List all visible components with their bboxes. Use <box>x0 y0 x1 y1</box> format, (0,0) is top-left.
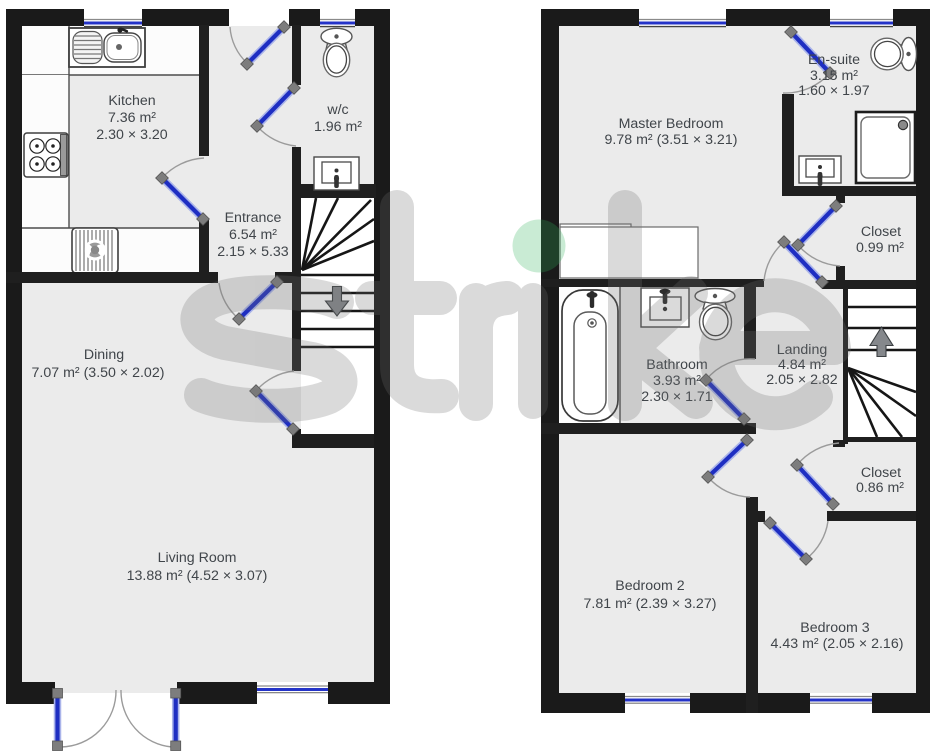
svg-text:7.07 m² (3.50 × 2.02): 7.07 m² (3.50 × 2.02) <box>32 365 165 381</box>
svg-text:w/c: w/c <box>326 102 348 118</box>
svg-text:Bedroom 2: Bedroom 2 <box>615 578 685 594</box>
svg-text:Closet: Closet <box>861 465 901 481</box>
svg-text:9.78 m² (3.51 × 3.21): 9.78 m² (3.51 × 3.21) <box>605 132 738 148</box>
svg-text:2.15 × 5.33: 2.15 × 5.33 <box>217 244 289 260</box>
svg-text:Closet: Closet <box>861 224 901 240</box>
svg-text:Kitchen: Kitchen <box>108 93 155 109</box>
svg-text:Entrance: Entrance <box>225 210 282 226</box>
svg-text:Dining: Dining <box>84 347 124 363</box>
svg-text:13.88 m² (4.52 × 3.07): 13.88 m² (4.52 × 3.07) <box>127 568 268 584</box>
svg-text:0.86 m²: 0.86 m² <box>856 480 904 496</box>
svg-text:7.81 m² (2.39 × 3.27): 7.81 m² (2.39 × 3.27) <box>584 596 717 612</box>
svg-text:0.99 m²: 0.99 m² <box>856 240 904 256</box>
svg-text:En-suite: En-suite <box>808 52 860 68</box>
svg-text:1.96 m²: 1.96 m² <box>314 119 362 135</box>
svg-text:4.43 m² (2.05 × 2.16): 4.43 m² (2.05 × 2.16) <box>771 636 904 652</box>
svg-text:7.36 m²: 7.36 m² <box>108 110 156 126</box>
svg-text:1.60 × 1.97: 1.60 × 1.97 <box>798 83 870 99</box>
svg-text:6.54 m²: 6.54 m² <box>229 227 277 243</box>
svg-text:2.30 × 3.20: 2.30 × 3.20 <box>96 127 168 143</box>
svg-text:Bedroom 3: Bedroom 3 <box>800 620 870 636</box>
svg-text:3.15 m²: 3.15 m² <box>810 68 858 84</box>
svg-text:Living Room: Living Room <box>158 550 237 566</box>
svg-text:Master Bedroom: Master Bedroom <box>619 116 724 132</box>
